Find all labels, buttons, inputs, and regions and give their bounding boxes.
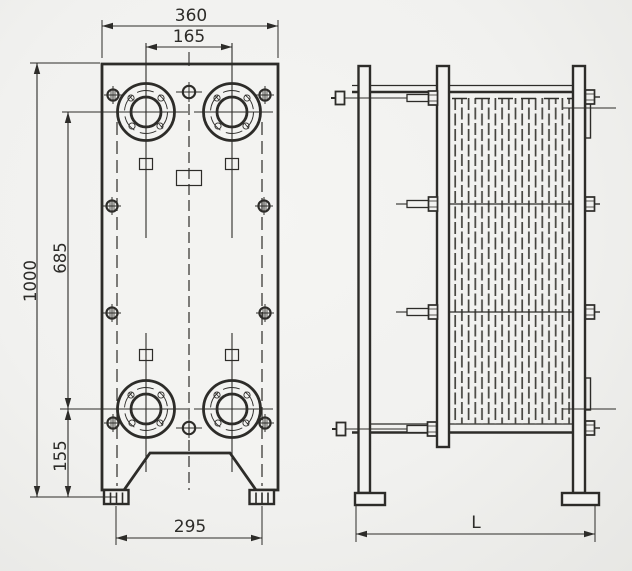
dim-port-spacing-h-label: 165 xyxy=(173,27,205,47)
dim-port-spacing-v: 685 xyxy=(51,112,70,409)
guide-bar-bottom xyxy=(352,424,585,433)
dim-foot-spacing-label: 295 xyxy=(174,517,206,537)
front-foot-right xyxy=(250,490,275,504)
side-dimensions: L xyxy=(356,506,595,542)
front-view xyxy=(60,43,278,504)
front-plate-outline xyxy=(102,64,278,490)
dim-port-spacing-h: 165 xyxy=(146,27,232,47)
side-foot-left xyxy=(355,493,385,505)
dim-bottom-port-offset-label: 155 xyxy=(51,440,70,472)
dim-overall-length: L xyxy=(356,506,595,542)
dim-foot-spacing: 295 xyxy=(116,506,262,545)
plate-pack xyxy=(452,98,574,424)
side-foot-right xyxy=(562,493,599,505)
dim-bottom-port-offset: 155 xyxy=(51,409,70,497)
dim-port-spacing-v-label: 685 xyxy=(51,242,70,274)
dim-width-label: 360 xyxy=(175,6,207,26)
dim-overall-height-label: 1000 xyxy=(21,260,40,302)
frame-plate-fixed xyxy=(573,66,585,493)
pressure-plate-movable xyxy=(437,66,449,447)
dim-overall-length-label: L xyxy=(471,513,481,533)
carrying-bar-top xyxy=(352,86,585,93)
side-view xyxy=(331,66,616,505)
heat-exchanger-drawing: 360 165 1000 685 155 295 xyxy=(0,0,632,571)
drawing-canvas: 360 165 1000 685 155 295 xyxy=(0,0,632,571)
